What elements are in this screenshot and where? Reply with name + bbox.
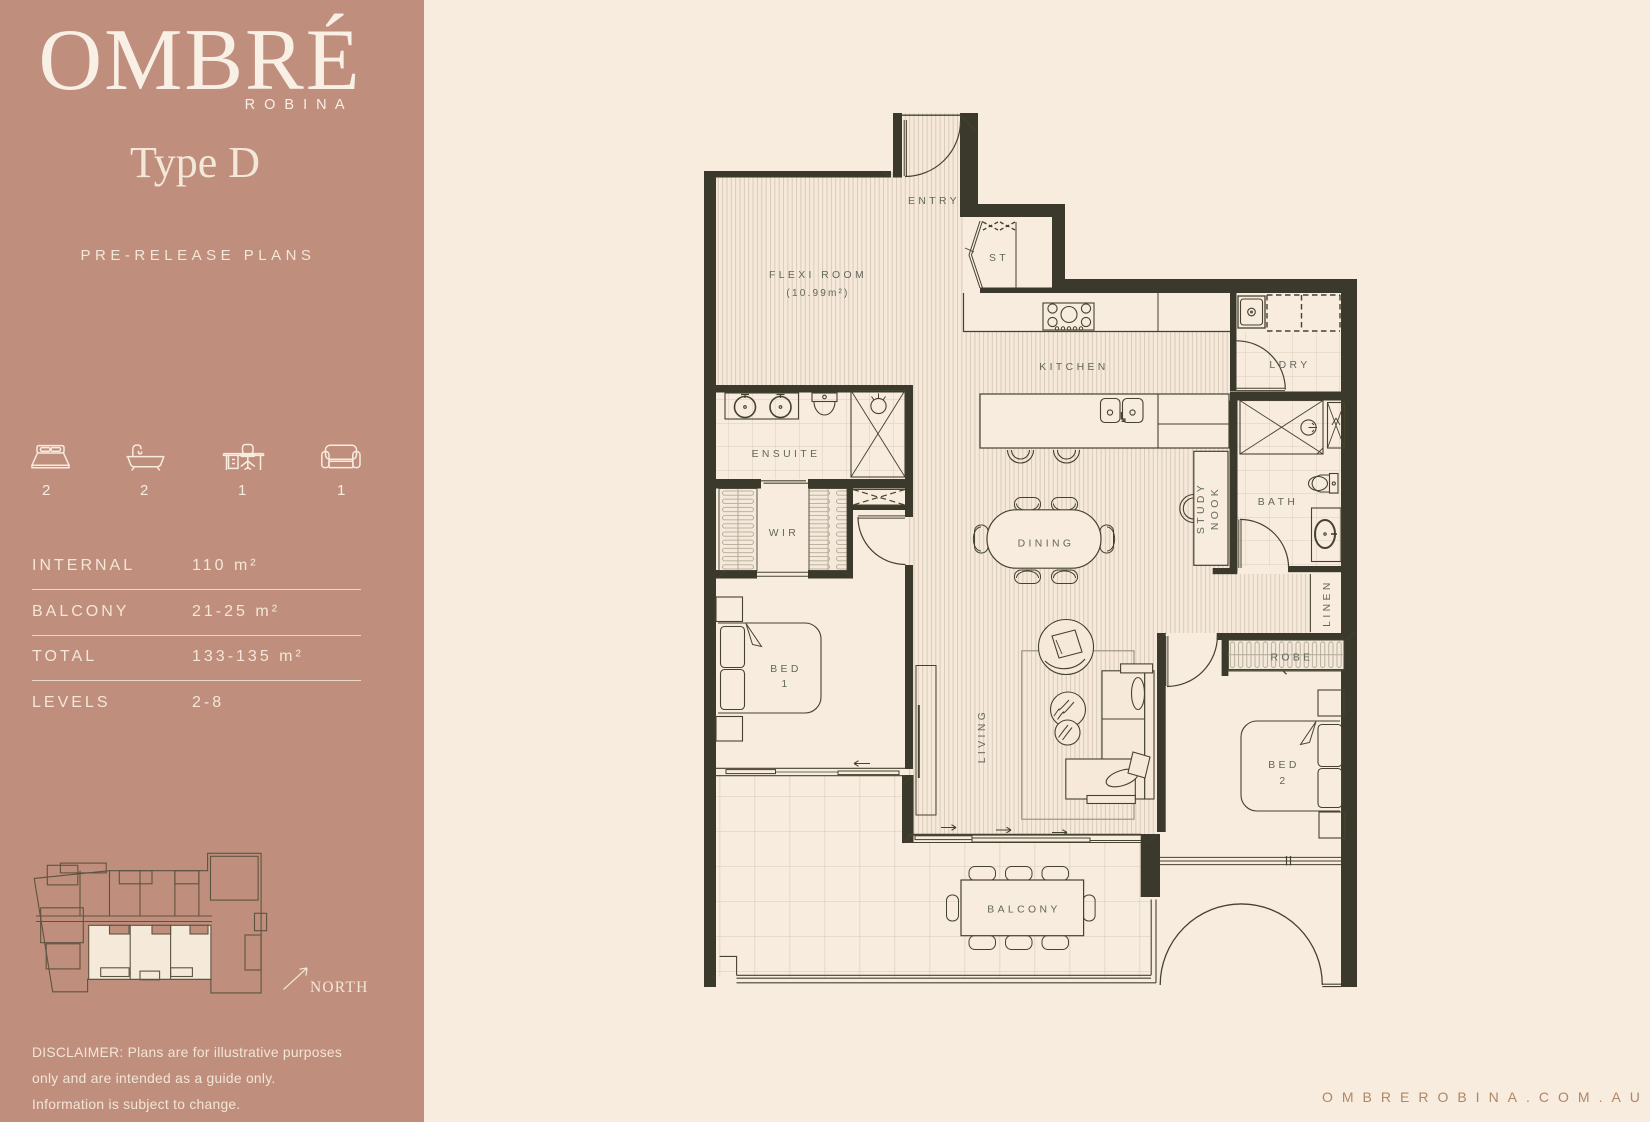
svg-text:BED: BED bbox=[770, 664, 802, 675]
svg-text:NOOK: NOOK bbox=[1210, 486, 1221, 530]
svg-text:(10.99m²): (10.99m²) bbox=[786, 288, 849, 299]
svg-text:BATH: BATH bbox=[1258, 497, 1299, 508]
svg-text:BED: BED bbox=[1268, 760, 1300, 771]
svg-text:ENTRY: ENTRY bbox=[908, 196, 960, 207]
svg-text:BALCONY: BALCONY bbox=[987, 905, 1060, 916]
svg-text:LIVING: LIVING bbox=[977, 709, 988, 763]
svg-text:DINING: DINING bbox=[1018, 539, 1075, 550]
svg-text:LINEN: LINEN bbox=[1322, 579, 1333, 627]
svg-text:LDRY: LDRY bbox=[1269, 360, 1310, 371]
svg-text:1: 1 bbox=[781, 679, 790, 690]
svg-text:WIR: WIR bbox=[769, 528, 799, 539]
svg-text:KITCHEN: KITCHEN bbox=[1039, 362, 1108, 373]
svg-text:FLEXI ROOM: FLEXI ROOM bbox=[769, 270, 867, 281]
svg-text:ENSUITE: ENSUITE bbox=[752, 449, 821, 460]
svg-text:ST: ST bbox=[989, 253, 1009, 264]
svg-text:ROBE: ROBE bbox=[1270, 653, 1313, 664]
svg-text:STUDY: STUDY bbox=[1196, 482, 1207, 534]
svg-text:2: 2 bbox=[1279, 776, 1288, 787]
